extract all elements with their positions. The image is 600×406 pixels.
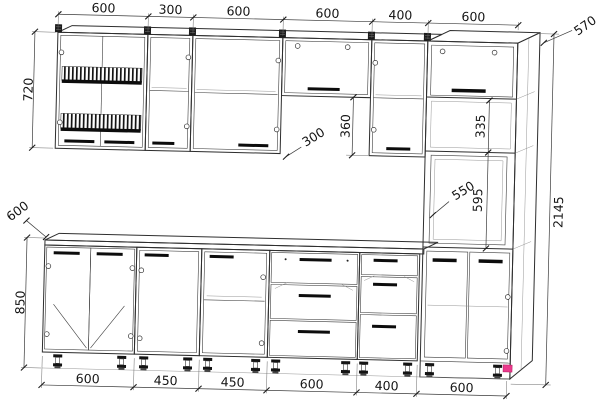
handle [54, 251, 80, 255]
handle [373, 283, 397, 287]
dim-base-height: 850 [12, 290, 28, 314]
dim-bottom-4: 400 [375, 378, 399, 394]
handle [479, 259, 503, 263]
kitchen-technical-drawing: 600 300 600 600 400 600 600 450 4 [0, 0, 600, 406]
dim-bottom-2: 450 [221, 374, 245, 390]
handle [97, 252, 123, 256]
handle [145, 253, 169, 257]
handle [386, 147, 410, 151]
dim-top-0: 600 [91, 0, 115, 16]
handle [374, 259, 398, 263]
dim-bottom-1: 450 [154, 373, 178, 389]
handle [372, 325, 396, 329]
pink-marker [503, 365, 512, 372]
dim-niche-height: 335 [473, 114, 489, 138]
dim-upper-height: 720 [20, 77, 36, 101]
handle [210, 255, 234, 259]
dim-top-4: 400 [388, 7, 412, 23]
dim-bottom-3: 600 [300, 376, 324, 392]
blueprint-canvas: 600 300 600 600 400 600 600 450 4 [0, 0, 600, 406]
dim-total-height: 2145 [550, 196, 566, 228]
dim-bottom-5: 600 [450, 380, 474, 396]
handle [152, 142, 174, 146]
dim-top-3: 600 [315, 5, 339, 21]
dim-bottom-0: 600 [76, 371, 100, 387]
handle [433, 258, 457, 262]
dim-top-1: 300 [158, 2, 182, 18]
dim-hood-gap: 360 [338, 114, 354, 138]
background [0, 0, 600, 406]
dim-top-5: 600 [461, 9, 485, 25]
dim-top-2: 600 [226, 3, 250, 19]
